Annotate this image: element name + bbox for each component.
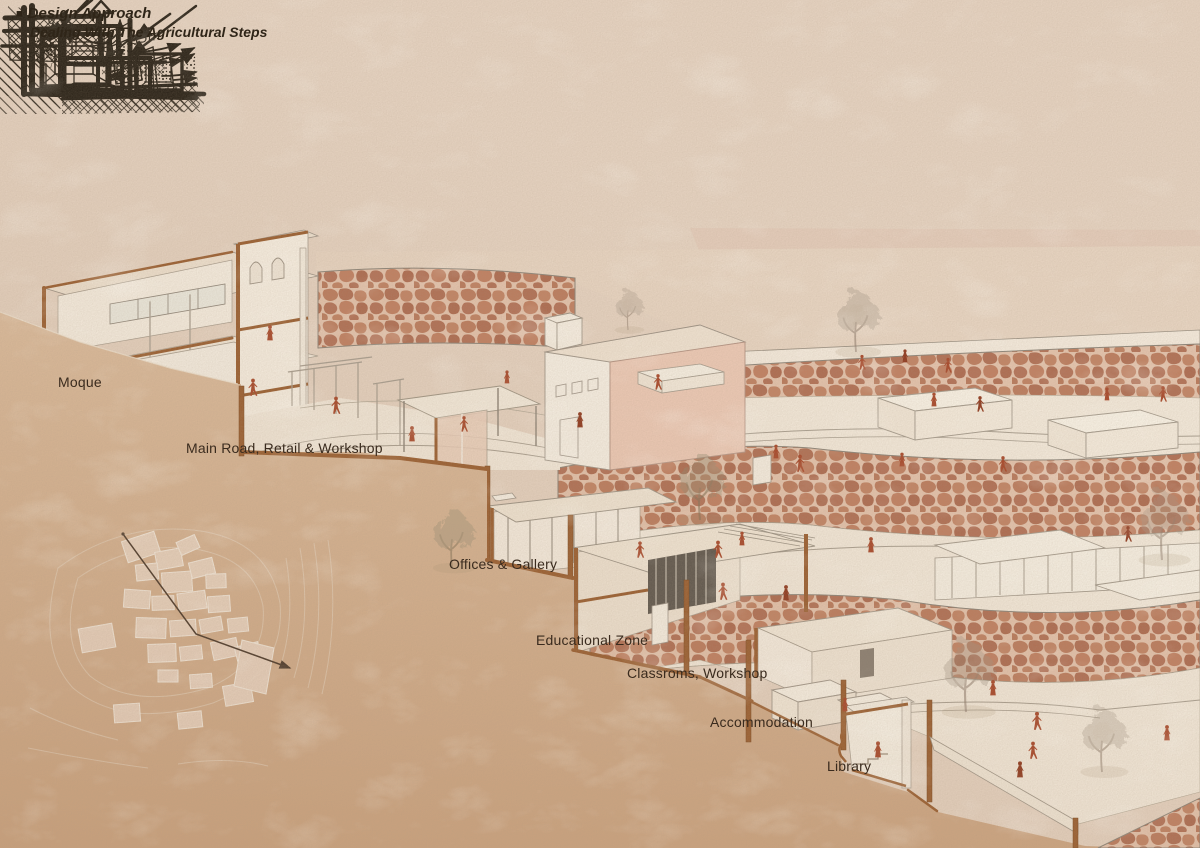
- label-moque: Moque: [58, 374, 102, 390]
- label-accommodation: Accommodation: [710, 714, 813, 730]
- page-title: Design Approach: [28, 5, 152, 22]
- label-library: Library: [827, 758, 871, 774]
- label-main-road: Main Road, Retail & Workshop: [186, 440, 383, 456]
- presentation-board: 0,5 2,5m: [0, 0, 1200, 848]
- label-educational-zone: Educational Zone: [536, 632, 648, 648]
- title-block: ■Design Approach Dealing With The Agricu…: [16, 5, 267, 40]
- label-classrooms-workshop: Classroms, Workshop: [627, 665, 767, 681]
- bullet-square-icon: ■: [16, 8, 23, 20]
- axonometric-scene: [0, 0, 1200, 848]
- label-offices-gallery: Offices & Gallery: [449, 556, 557, 572]
- page-subtitle: Dealing With The Agricultural Steps: [30, 24, 267, 40]
- corner-shade: [0, 0, 1200, 848]
